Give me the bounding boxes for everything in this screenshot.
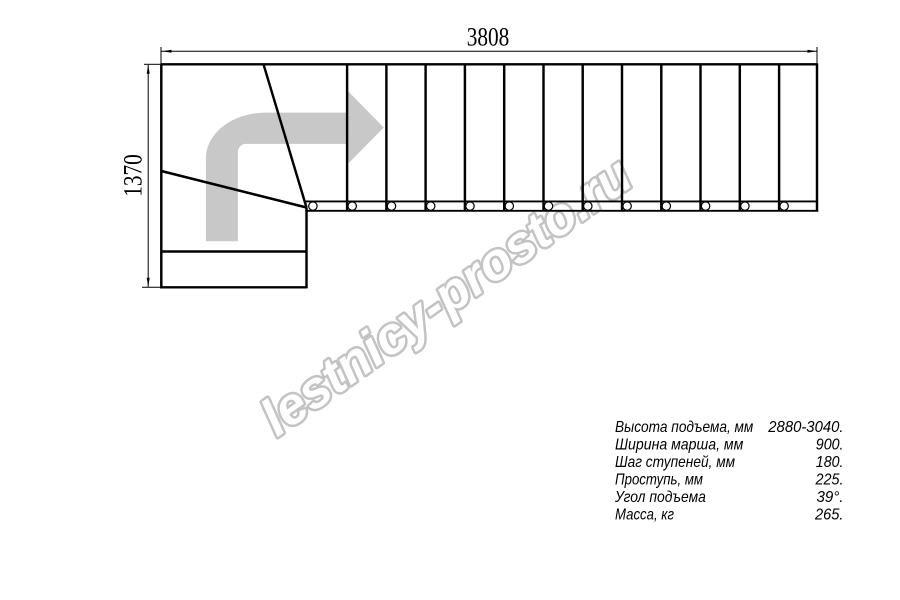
svg-text:39°.: 39°. [817,489,844,506]
svg-text:180.: 180. [816,454,844,471]
svg-text:Ширина марша, мм: Ширина марша, мм [615,437,743,454]
svg-text:Проступь, мм: Проступь, мм [615,472,703,489]
svg-text:900.: 900. [816,437,844,454]
svg-text:265.: 265. [814,507,843,524]
svg-text:2880-3040.: 2880-3040. [767,419,843,436]
svg-text:Масса, кг: Масса, кг [615,507,674,524]
svg-text:1370: 1370 [119,154,148,197]
svg-text:Высота подъема, мм: Высота подъема, мм [615,419,753,436]
svg-text:Шаг ступеней, мм: Шаг ступеней, мм [615,454,735,471]
svg-text:Угол подъема: Угол подъема [614,489,706,506]
svg-text:3808: 3808 [467,23,510,52]
svg-text:225.: 225. [815,472,844,489]
